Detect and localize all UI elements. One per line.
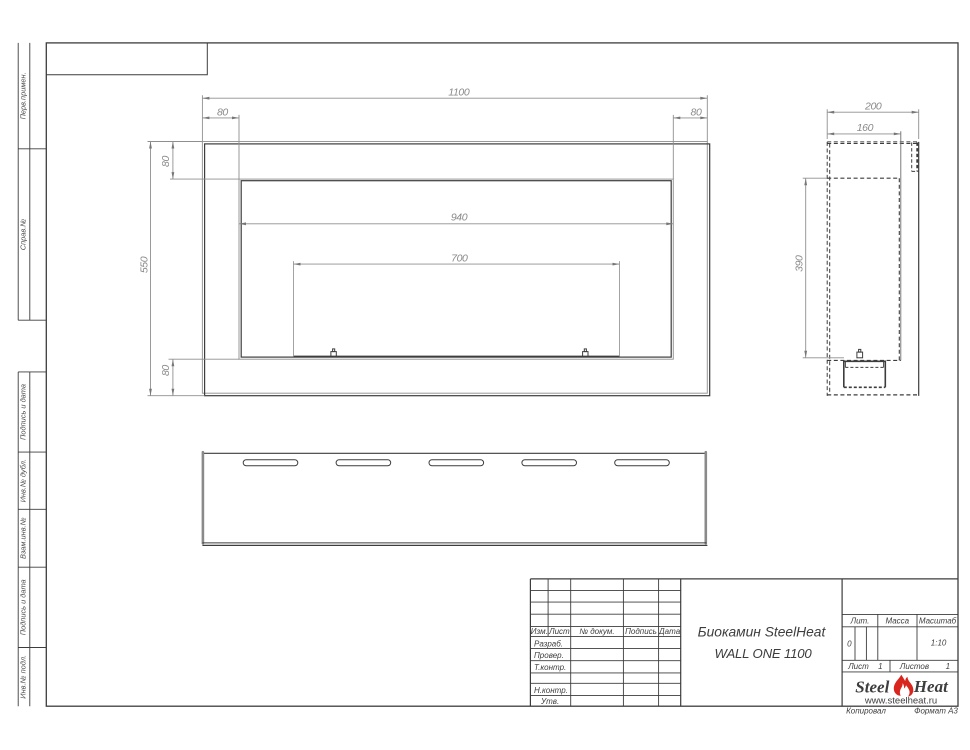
svg-text:Лит.: Лит. <box>850 617 870 626</box>
svg-text:390: 390 <box>794 255 806 272</box>
svg-text:Лист: Лист <box>548 627 570 636</box>
svg-text:1100: 1100 <box>448 87 470 99</box>
svg-text:1:10: 1:10 <box>931 639 947 648</box>
svg-text:Steel: Steel <box>855 678 889 697</box>
svg-text:WALL ONE 1100: WALL ONE 1100 <box>714 646 812 661</box>
svg-text:Разраб.: Разраб. <box>534 639 563 648</box>
svg-text:Масса: Масса <box>885 617 909 626</box>
svg-text:Подпись и дата: Подпись и дата <box>19 384 28 440</box>
svg-text:Провер.: Провер. <box>534 651 564 660</box>
svg-text:80: 80 <box>160 156 172 167</box>
svg-text:80: 80 <box>217 107 228 119</box>
svg-text:Справ.№: Справ.№ <box>19 219 28 251</box>
svg-text:Подпись: Подпись <box>625 627 657 636</box>
svg-text:700: 700 <box>451 253 468 265</box>
svg-text:Перв.примен.: Перв.примен. <box>19 72 28 119</box>
svg-text:Утв.: Утв. <box>540 697 559 706</box>
svg-text:Н.контр.: Н.контр. <box>534 686 568 695</box>
svg-text:№ докум.: № докум. <box>579 627 614 636</box>
svg-text:940: 940 <box>451 211 468 223</box>
svg-text:Инв.№ дубл.: Инв.№ дубл. <box>19 459 28 502</box>
svg-text:Формат А3: Формат А3 <box>914 706 958 715</box>
svg-text:1: 1 <box>946 662 950 671</box>
svg-text:160: 160 <box>857 122 874 134</box>
svg-text:Дата: Дата <box>658 627 681 636</box>
svg-text:Heat: Heat <box>913 677 949 696</box>
svg-text:Подпись и дата: Подпись и дата <box>19 579 28 635</box>
svg-text:80: 80 <box>691 107 702 119</box>
svg-text:Копировал: Копировал <box>846 706 886 715</box>
svg-text:80: 80 <box>160 365 172 376</box>
svg-text:www.steelheat.ru: www.steelheat.ru <box>864 696 937 707</box>
svg-text:Биокамин SteelHeat: Биокамин SteelHeat <box>698 625 827 640</box>
svg-text:Листов: Листов <box>899 662 929 671</box>
svg-text:Масштаб: Масштаб <box>919 617 957 626</box>
svg-text:200: 200 <box>864 100 882 112</box>
svg-text:1: 1 <box>878 662 882 671</box>
svg-text:Лист: Лист <box>847 662 869 671</box>
svg-text:Инв.№ подл.: Инв.№ подл. <box>19 655 28 699</box>
svg-text:550: 550 <box>139 256 151 273</box>
svg-text:0: 0 <box>847 640 852 649</box>
svg-text:Взам.инв.№: Взам.инв.№ <box>19 517 28 559</box>
svg-text:Т.контр.: Т.контр. <box>534 663 566 672</box>
svg-text:Изм.: Изм. <box>531 627 548 636</box>
